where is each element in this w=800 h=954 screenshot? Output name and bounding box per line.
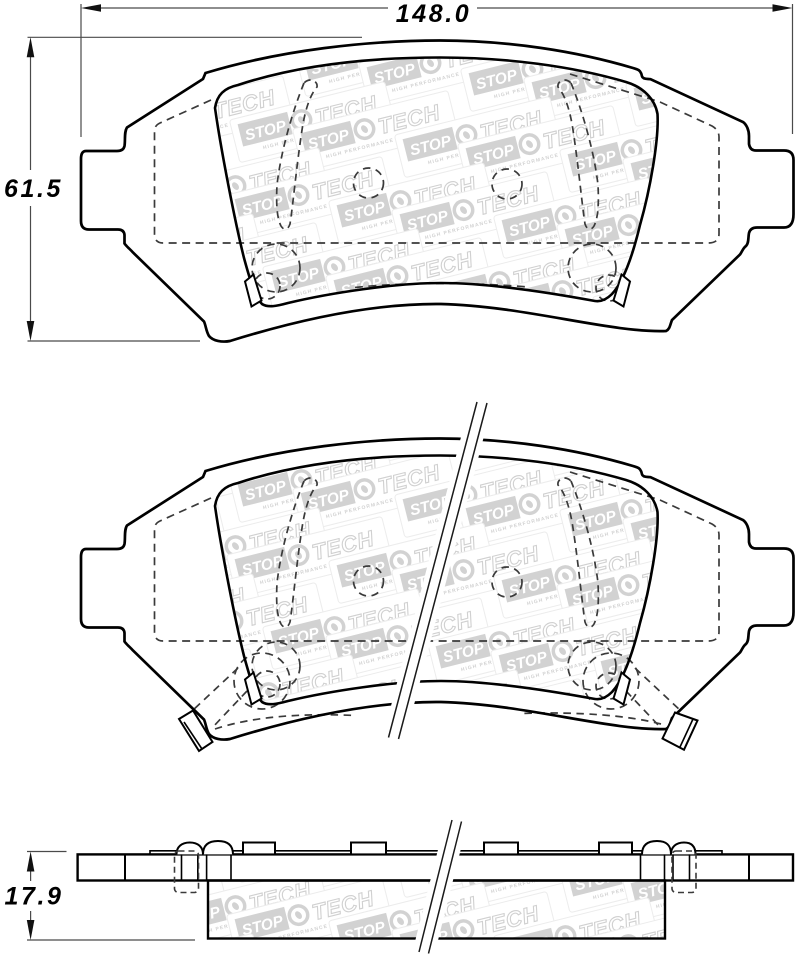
svg-text:61.5: 61.5 — [4, 175, 63, 203]
svg-text:17.9: 17.9 — [4, 883, 63, 911]
svg-text:148.0: 148.0 — [396, 0, 472, 28]
